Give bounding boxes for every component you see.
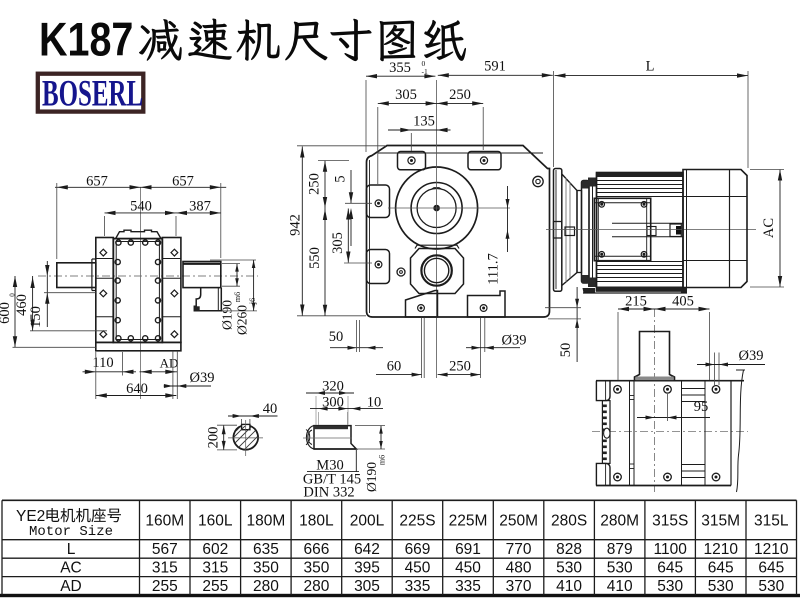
svg-text:135: 135	[413, 113, 435, 129]
svg-text:160L: 160L	[198, 513, 233, 530]
svg-text:645: 645	[657, 559, 683, 576]
svg-text:315: 315	[152, 559, 178, 576]
svg-text:280: 280	[303, 578, 329, 595]
svg-text:60: 60	[387, 359, 402, 375]
svg-text:150: 150	[28, 306, 44, 328]
svg-text:Ø190: Ø190	[364, 462, 379, 492]
svg-text:AC: AC	[60, 559, 82, 576]
svg-text:666: 666	[303, 541, 329, 558]
svg-text:Ø190: Ø190	[220, 300, 235, 330]
svg-text:410: 410	[556, 578, 582, 595]
svg-text:280: 280	[253, 578, 279, 595]
svg-text:225M: 225M	[449, 513, 488, 530]
svg-text:942: 942	[288, 214, 304, 236]
svg-text:Motor Size: Motor Size	[29, 524, 113, 540]
svg-text:111.7: 111.7	[486, 253, 502, 285]
svg-text:669: 669	[405, 541, 431, 558]
svg-text:387: 387	[189, 198, 211, 214]
svg-text:5: 5	[333, 175, 349, 182]
svg-text:320: 320	[322, 379, 344, 395]
svg-text:879: 879	[607, 541, 633, 558]
svg-text:180M: 180M	[247, 513, 286, 530]
svg-text:40: 40	[263, 401, 278, 417]
svg-text:305: 305	[395, 87, 417, 103]
svg-text:645: 645	[708, 559, 734, 576]
svg-text:335: 335	[455, 578, 481, 595]
svg-text:691: 691	[455, 541, 481, 558]
svg-text:DIN 332: DIN 332	[303, 485, 354, 501]
svg-text:300: 300	[322, 395, 344, 411]
svg-text:530: 530	[607, 559, 633, 576]
svg-text:305: 305	[330, 232, 346, 254]
svg-text:550: 550	[307, 247, 323, 269]
svg-text:657: 657	[86, 173, 108, 189]
svg-text:828: 828	[556, 541, 582, 558]
svg-text:602: 602	[202, 541, 228, 558]
svg-text:600: 600	[0, 302, 13, 324]
svg-text:215: 215	[625, 293, 647, 309]
svg-text:370: 370	[506, 578, 532, 595]
svg-text:315L: 315L	[754, 513, 789, 530]
svg-text:530: 530	[758, 578, 784, 595]
svg-text:K187: K187	[39, 14, 133, 66]
svg-text:530: 530	[708, 578, 734, 595]
svg-text:410: 410	[607, 578, 633, 595]
svg-text:480: 480	[506, 559, 532, 576]
svg-text:95: 95	[694, 399, 709, 415]
svg-text:AC: AC	[761, 218, 777, 238]
svg-text:350: 350	[303, 559, 329, 576]
svg-text:1210: 1210	[703, 541, 738, 558]
svg-text:635: 635	[253, 541, 279, 558]
svg-text:350: 350	[253, 559, 279, 576]
svg-text:530: 530	[657, 578, 683, 595]
svg-text:AD: AD	[160, 356, 179, 371]
svg-text:200L: 200L	[350, 513, 385, 530]
svg-text:255: 255	[152, 578, 178, 595]
svg-text:591: 591	[484, 58, 506, 74]
svg-text:250M: 250M	[499, 513, 538, 530]
svg-text:Ø39: Ø39	[502, 333, 527, 349]
svg-text:10: 10	[367, 395, 382, 411]
svg-text:315: 315	[202, 559, 228, 576]
svg-text:j6: j6	[248, 298, 257, 305]
svg-text:-1: -1	[422, 67, 428, 76]
svg-text:YE2: YE2	[16, 508, 45, 525]
svg-text:405: 405	[672, 293, 694, 309]
svg-text:355: 355	[389, 60, 411, 76]
svg-text:L: L	[646, 58, 655, 74]
svg-text:540: 540	[130, 198, 152, 214]
svg-text:645: 645	[758, 559, 784, 576]
svg-text:450: 450	[405, 559, 431, 576]
svg-text:Ø260: Ø260	[235, 305, 250, 335]
svg-text:BOSERL: BOSERL	[42, 72, 143, 113]
svg-text:250: 250	[307, 173, 323, 195]
svg-text:Ø39: Ø39	[739, 348, 764, 364]
svg-text:280S: 280S	[551, 513, 587, 530]
svg-text:640: 640	[126, 381, 148, 397]
svg-text:305: 305	[354, 578, 380, 595]
svg-text:m6: m6	[378, 455, 387, 465]
svg-text:395: 395	[354, 559, 380, 576]
svg-text:50: 50	[329, 329, 344, 345]
svg-text:280M: 280M	[600, 513, 639, 530]
svg-text:160M: 160M	[145, 513, 184, 530]
svg-text:530: 530	[556, 559, 582, 576]
svg-text:450: 450	[455, 559, 481, 576]
svg-text:1210: 1210	[754, 541, 789, 558]
svg-text:1100: 1100	[654, 541, 688, 558]
svg-text:Ø39: Ø39	[190, 370, 215, 386]
svg-text:180L: 180L	[299, 513, 334, 530]
svg-text:335: 335	[405, 578, 431, 595]
svg-text:L: L	[67, 541, 76, 558]
svg-text:AD: AD	[60, 578, 82, 595]
svg-text:250: 250	[449, 87, 471, 103]
svg-text:255: 255	[202, 578, 228, 595]
svg-text:657: 657	[172, 173, 194, 189]
svg-text:225S: 225S	[399, 513, 435, 530]
svg-text:250: 250	[449, 359, 471, 375]
svg-text:642: 642	[354, 541, 380, 558]
svg-text:315S: 315S	[652, 513, 688, 530]
svg-text:200: 200	[206, 427, 222, 449]
svg-text:567: 567	[152, 541, 178, 558]
svg-text:315M: 315M	[701, 513, 740, 530]
svg-text:770: 770	[506, 541, 532, 558]
svg-text:m6: m6	[233, 292, 242, 302]
svg-text:50: 50	[558, 343, 574, 358]
